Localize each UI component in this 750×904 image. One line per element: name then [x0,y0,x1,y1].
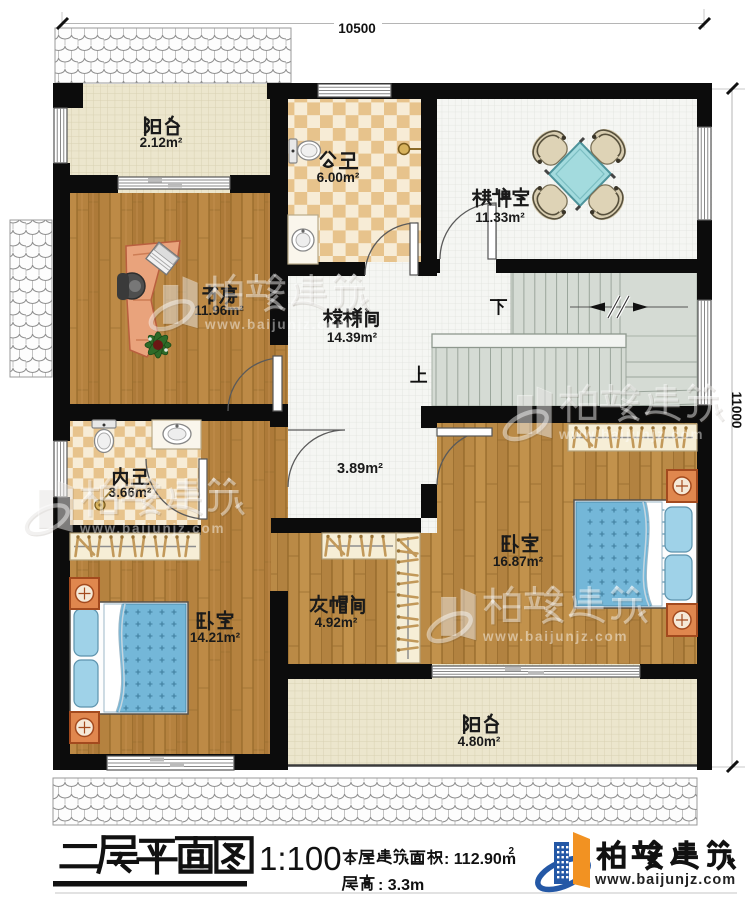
svg-text:16.87m²: 16.87m² [493,554,544,569]
svg-text:3.89m²: 3.89m² [337,461,383,477]
svg-text:www.baijunjz.com: www.baijunjz.com [594,872,736,888]
svg-text:10500: 10500 [338,21,376,36]
svg-text:2: 2 [509,846,515,857]
svg-text:2.12m²: 2.12m² [140,135,183,150]
svg-text:14.21m²: 14.21m² [190,630,241,645]
svg-text:4.92m²: 4.92m² [315,615,358,630]
svg-text:: 3.3m: : 3.3m [378,877,424,894]
svg-text:: 112.90m: : 112.90m [444,851,516,868]
svg-text:www.baijunjz.com: www.baijunjz.com [204,317,350,332]
svg-text:11000: 11000 [729,392,744,429]
svg-text:6.00m²: 6.00m² [317,170,360,185]
svg-text:4.80m²: 4.80m² [458,734,501,749]
svg-text:11.33m²: 11.33m² [475,210,525,225]
svg-text:www.baijunjz.com: www.baijunjz.com [79,521,225,536]
svg-text:www.baijunjz.com: www.baijunjz.com [482,629,628,644]
svg-text:1:100: 1:100 [259,840,342,877]
svg-text:14.39m²: 14.39m² [327,330,378,345]
svg-text:www.baijunjz.com: www.baijunjz.com [558,427,704,442]
